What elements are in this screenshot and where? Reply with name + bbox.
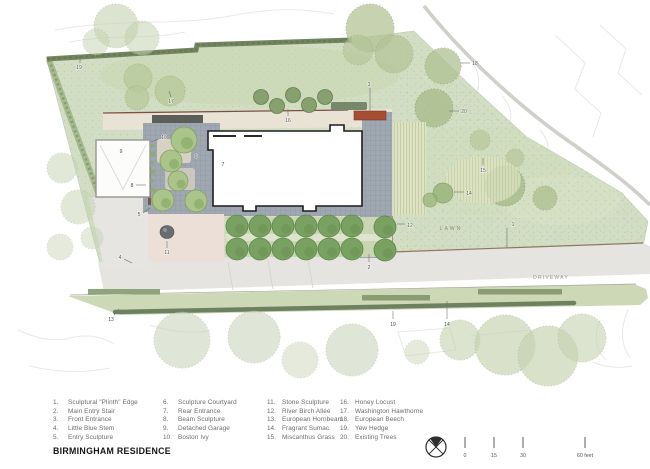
entry-hedge-bar [331,102,367,110]
plan-marker-13: 13 [108,317,114,323]
plan-marker-14: 14 [466,191,472,197]
scale-tick-label: 30 [520,453,526,459]
residence-building [208,125,362,211]
scale-tick-label: 60 feet [577,453,594,459]
plan-marker-2: 2 [368,265,371,271]
plan-marker-8: 8 [131,183,134,189]
page-title: BIRMINGHAM RESIDENCE [53,446,171,456]
site-plan-sheet: LAWNDRIVEWAY 191718201631096785411212115… [0,0,650,469]
plan-marker-10: 10 [161,135,167,141]
area-label-lawn: LAWN [440,226,463,232]
plan-marker-7: 7 [222,162,225,168]
plan-marker-11: 11 [164,250,169,256]
detached-garage [96,140,150,197]
plan-marker-4: 4 [119,255,122,261]
plan-marker-6: 6 [195,154,198,160]
plan-marker-15: 15 [480,168,486,174]
front-entrance-bench [354,111,386,120]
pink-terrace [148,214,224,262]
plan-marker-19: 19 [76,65,82,71]
scale-tick-label: 15 [491,453,497,459]
plan-marker-12: 12 [407,223,413,229]
scale-tick-label: 0 [464,453,467,459]
east-terrace [362,112,392,217]
plan-marker-16: 16 [285,118,291,124]
plan-marker-9: 9 [120,149,123,155]
plan-marker-17: 17 [168,99,174,105]
site-plan-drawing: LAWNDRIVEWAY 191718201631096785411212115… [0,0,650,469]
plan-marker-3: 3 [368,82,371,88]
plan-marker-5: 5 [138,212,141,218]
beam-element [152,115,203,123]
stone-sculpture [160,226,174,239]
plan-marker-19: 19 [390,322,396,328]
river-birch-allee [226,215,396,261]
area-label-driveway: DRIVEWAY [533,275,569,281]
plan-marker-20: 20 [461,109,467,115]
plan-marker-18: 18 [472,61,478,67]
plan-marker-1: 1 [512,222,515,228]
plan-marker-14: 14 [444,322,450,328]
